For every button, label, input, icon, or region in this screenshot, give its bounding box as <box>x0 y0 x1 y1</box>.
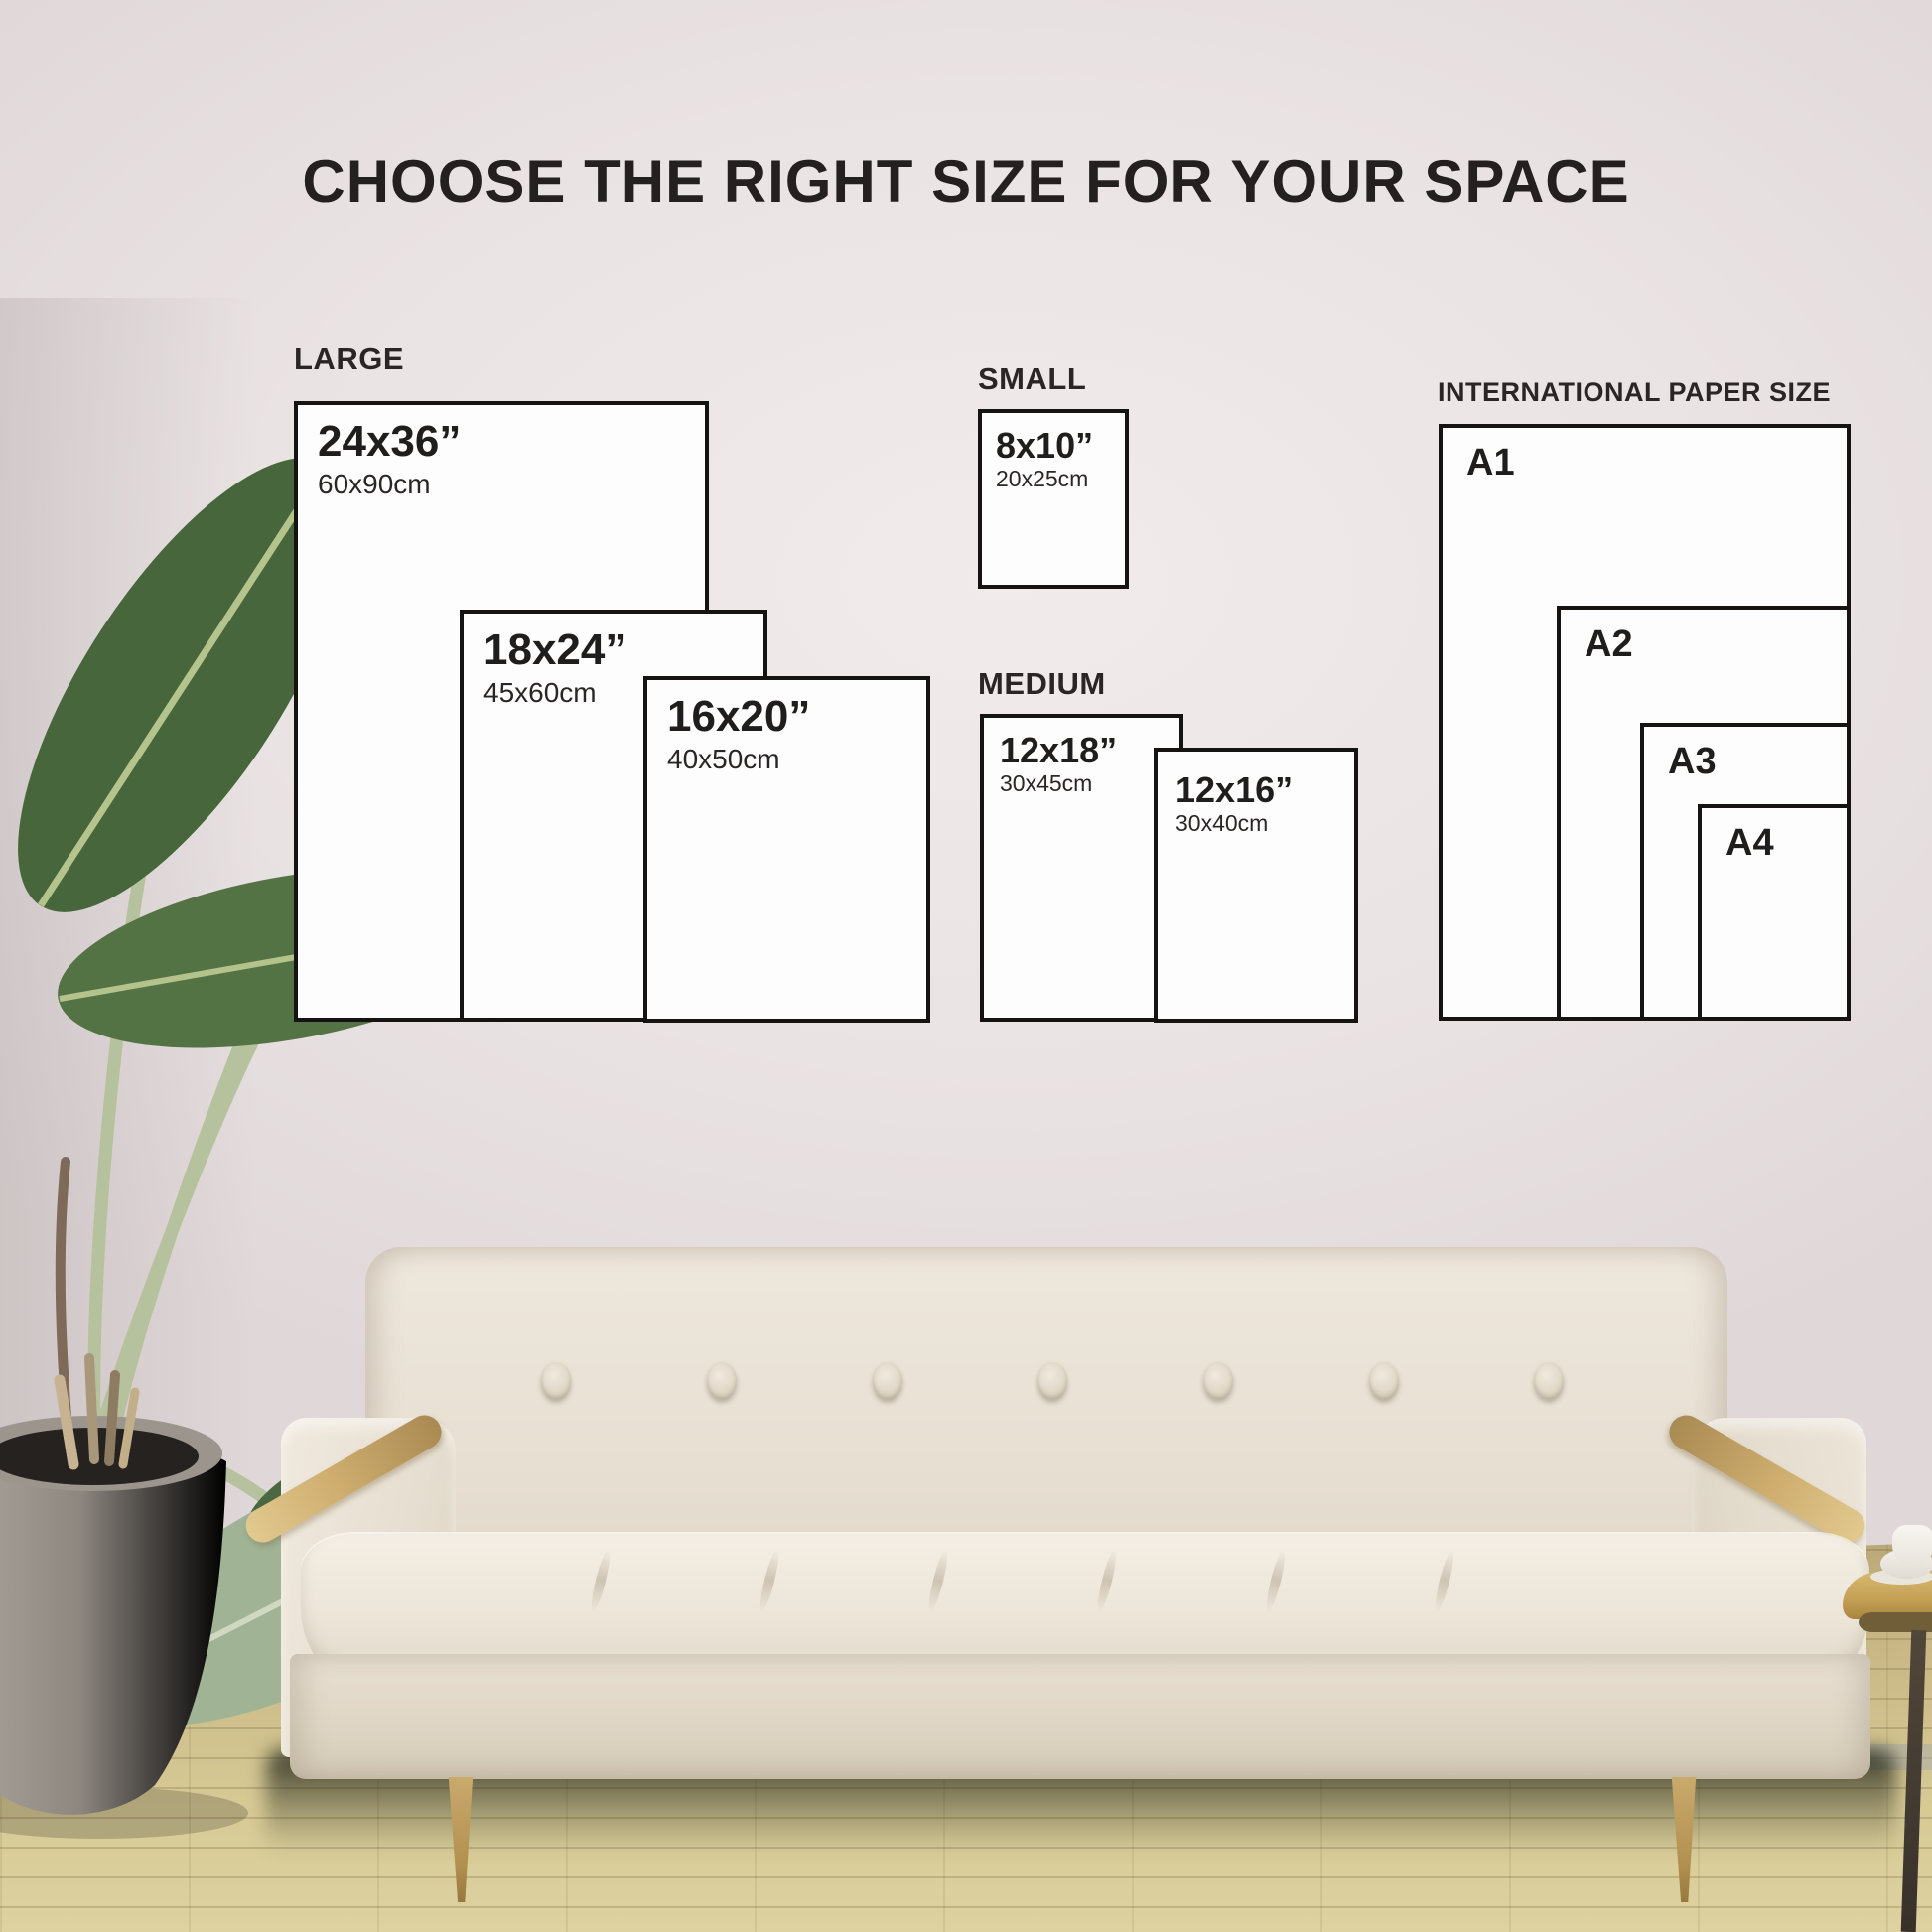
group-label-international: INTERNATIONAL PAPER SIZE <box>1438 377 1831 408</box>
size-cm: 40x50cm <box>667 743 926 776</box>
side-table-edge <box>1859 1612 1932 1632</box>
couch-leg-right <box>1666 1777 1702 1902</box>
size-name: A3 <box>1668 741 1717 782</box>
size-name: A2 <box>1585 623 1633 665</box>
couch-leg-left <box>443 1777 479 1902</box>
page-title: CHOOSE THE RIGHT SIZE FOR YOUR SPACE <box>0 147 1932 215</box>
size-inches: 12x18” <box>1000 730 1179 770</box>
size-cm: 30x45cm <box>1000 770 1179 798</box>
size-inches: 12x16” <box>1175 769 1354 810</box>
group-label-large: LARGE <box>294 342 404 377</box>
tufting-button <box>873 1362 902 1400</box>
size-inches: 24x36” <box>318 417 705 468</box>
poster-size-guide: CHOOSE THE RIGHT SIZE FOR YOUR SPACE LAR… <box>0 0 1932 1932</box>
tufting-button <box>1534 1362 1564 1400</box>
tufting-button <box>707 1362 737 1400</box>
group-label-medium: MEDIUM <box>978 666 1106 702</box>
size-inches: 16x20” <box>667 692 926 743</box>
size-inches: 18x24” <box>483 625 763 676</box>
tufting-button <box>1203 1362 1233 1400</box>
size-rect-a4: A4 <box>1698 804 1851 1021</box>
cup <box>1892 1525 1932 1565</box>
size-rect-8x10: 8x10” 20x25cm <box>978 409 1129 589</box>
size-cm: 60x90cm <box>318 468 705 501</box>
size-rect-12x16: 12x16” 30x40cm <box>1154 748 1358 1023</box>
couch-base <box>290 1654 1870 1779</box>
tufting-button <box>1037 1362 1067 1400</box>
size-cm: 30x40cm <box>1175 810 1354 838</box>
tufting-button <box>541 1362 571 1400</box>
size-rect-16x20: 16x20” 40x50cm <box>643 676 930 1023</box>
size-name: A1 <box>1466 442 1515 483</box>
size-cm: 20x25cm <box>996 466 1125 493</box>
group-label-small: SMALL <box>978 361 1086 397</box>
tufting-button <box>1369 1362 1399 1400</box>
size-inches: 8x10” <box>996 425 1125 466</box>
size-name: A4 <box>1725 822 1774 864</box>
